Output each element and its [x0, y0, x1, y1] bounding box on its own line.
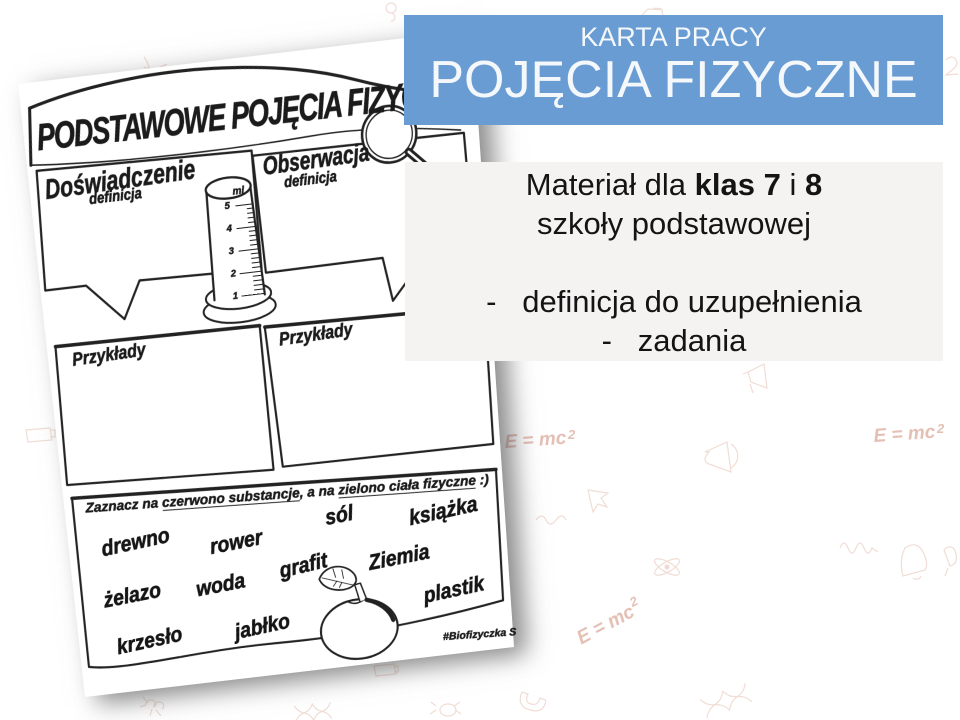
- svg-text:E = mc: E = mc: [504, 428, 568, 453]
- svg-text:E = mc: E = mc: [873, 422, 937, 447]
- svg-text:E = mc: E = mc: [574, 601, 639, 649]
- svg-text:2: 2: [567, 427, 576, 442]
- svg-text:2: 2: [936, 421, 945, 436]
